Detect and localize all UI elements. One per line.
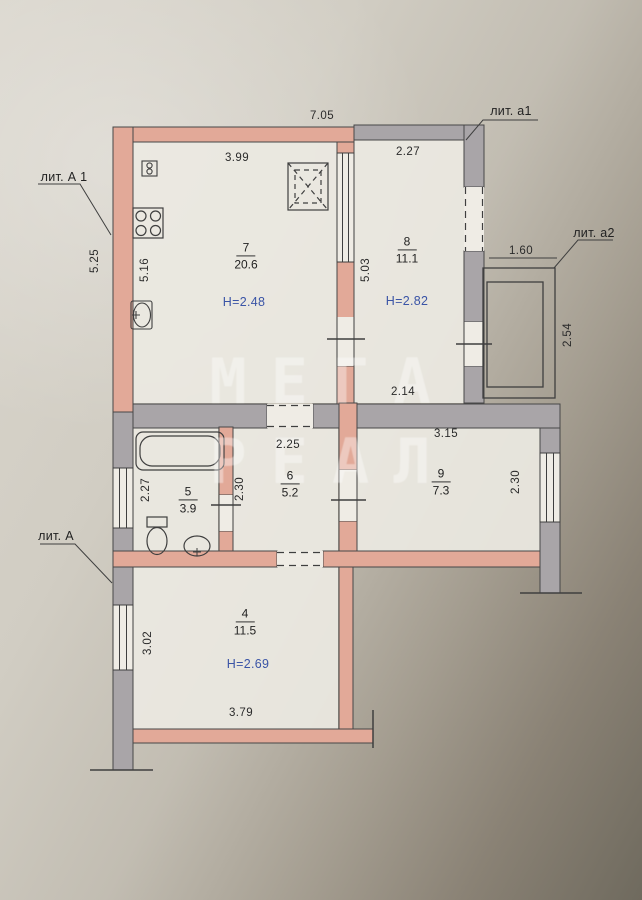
dim-room5-right: 2.30 [234, 477, 246, 501]
height-label-room4: Н=2.69 [227, 657, 269, 671]
room4-area: 11.5 [234, 623, 256, 637]
room5-area: 3.9 [180, 501, 197, 515]
room-label-8: 8 11.1 [396, 235, 418, 264]
room6-area: 5.2 [282, 485, 299, 499]
room-label-4: 4 11.5 [234, 607, 256, 636]
room-label-7: 7 20.6 [234, 241, 257, 270]
room6-number: 6 [281, 469, 300, 484]
litera-label-A1: лит. А 1 [41, 170, 88, 184]
height-label-room7: Н=2.48 [223, 295, 265, 309]
dim-room4-left: 3.02 [142, 631, 154, 655]
dim-room5-height: 2.27 [140, 478, 152, 502]
dim-left-outer-height: 5.25 [89, 249, 101, 273]
room7-number: 7 [237, 241, 256, 256]
dim-room4-width: 3.79 [229, 707, 253, 719]
room8-number: 8 [398, 235, 417, 250]
litera-label-a2: лит. а2 [573, 226, 615, 240]
room8-area: 11.1 [396, 251, 418, 265]
room-label-5: 5 3.9 [179, 485, 198, 514]
height-label-room8: Н=2.82 [386, 294, 428, 308]
dim-hall-width: 2.25 [276, 439, 300, 451]
room9-area: 7.3 [433, 483, 450, 497]
room5-number: 5 [179, 485, 198, 500]
dim-room7-right-height: 5.03 [360, 258, 372, 282]
dim-balcony-width: 1.60 [509, 245, 533, 257]
dim-room7-left-height: 5.16 [139, 258, 151, 282]
dim-room9-width: 3.15 [434, 428, 458, 440]
dim-room7-width: 3.99 [225, 152, 249, 164]
room-label-9: 9 7.3 [432, 467, 451, 496]
room9-number: 9 [432, 467, 451, 482]
dim-room8-width: 2.27 [396, 146, 420, 158]
room4-number: 4 [236, 607, 255, 622]
dim-overall-top: 7.05 [310, 110, 334, 122]
litera-label-a1: лит. а1 [490, 104, 532, 118]
plan-labels: лит. А 1 лит. а1 лит. а2 лит. А 7.05 3.9… [0, 0, 642, 900]
dim-room9-depth: 2.30 [510, 470, 522, 494]
dim-balcony-depth: 2.54 [562, 323, 574, 347]
litera-label-A: лит. А [38, 529, 74, 543]
room-label-6: 6 5.2 [281, 469, 300, 498]
room7-area: 20.6 [234, 257, 257, 271]
photographed-floor-plan: МЕГА РЕАЛ лит. А 1 лит. а1 лит. а2 лит. … [0, 0, 642, 900]
dim-hall-upper: 2.14 [391, 386, 415, 398]
